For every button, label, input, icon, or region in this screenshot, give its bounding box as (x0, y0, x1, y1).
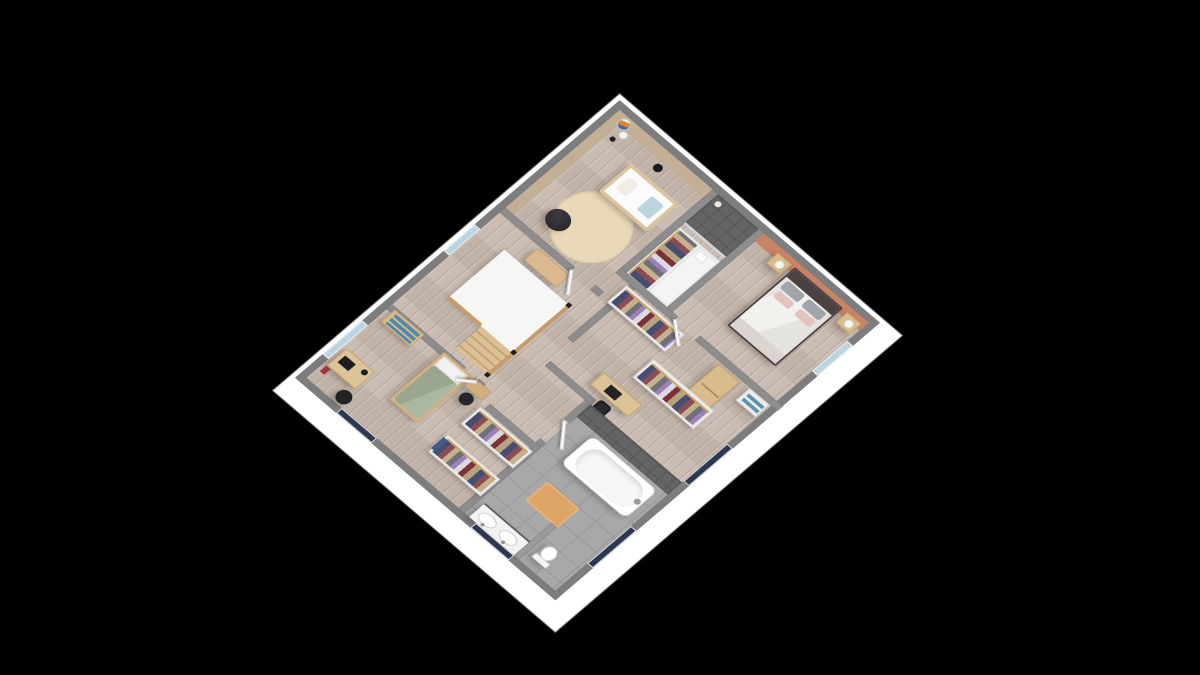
red-book (320, 366, 331, 375)
bath-mat[interactable] (525, 481, 580, 528)
shower-head-icon (713, 200, 723, 208)
lamp-base (608, 135, 616, 142)
cabinet-shelf-line (701, 383, 719, 399)
table-lamp-icon (842, 318, 856, 330)
desk-lamp-icon (359, 368, 369, 376)
lamp-bauble (617, 130, 630, 141)
render-viewport (0, 0, 1200, 675)
table-lamp-icon (772, 259, 786, 271)
speaker-decor[interactable] (651, 162, 665, 174)
kids-desk[interactable] (327, 348, 375, 389)
tub-faucet-icon (632, 498, 642, 506)
laptop (603, 384, 622, 400)
laptop (338, 355, 356, 371)
floorplan-3d-scene[interactable] (273, 94, 902, 631)
toilet[interactable] (532, 543, 562, 568)
